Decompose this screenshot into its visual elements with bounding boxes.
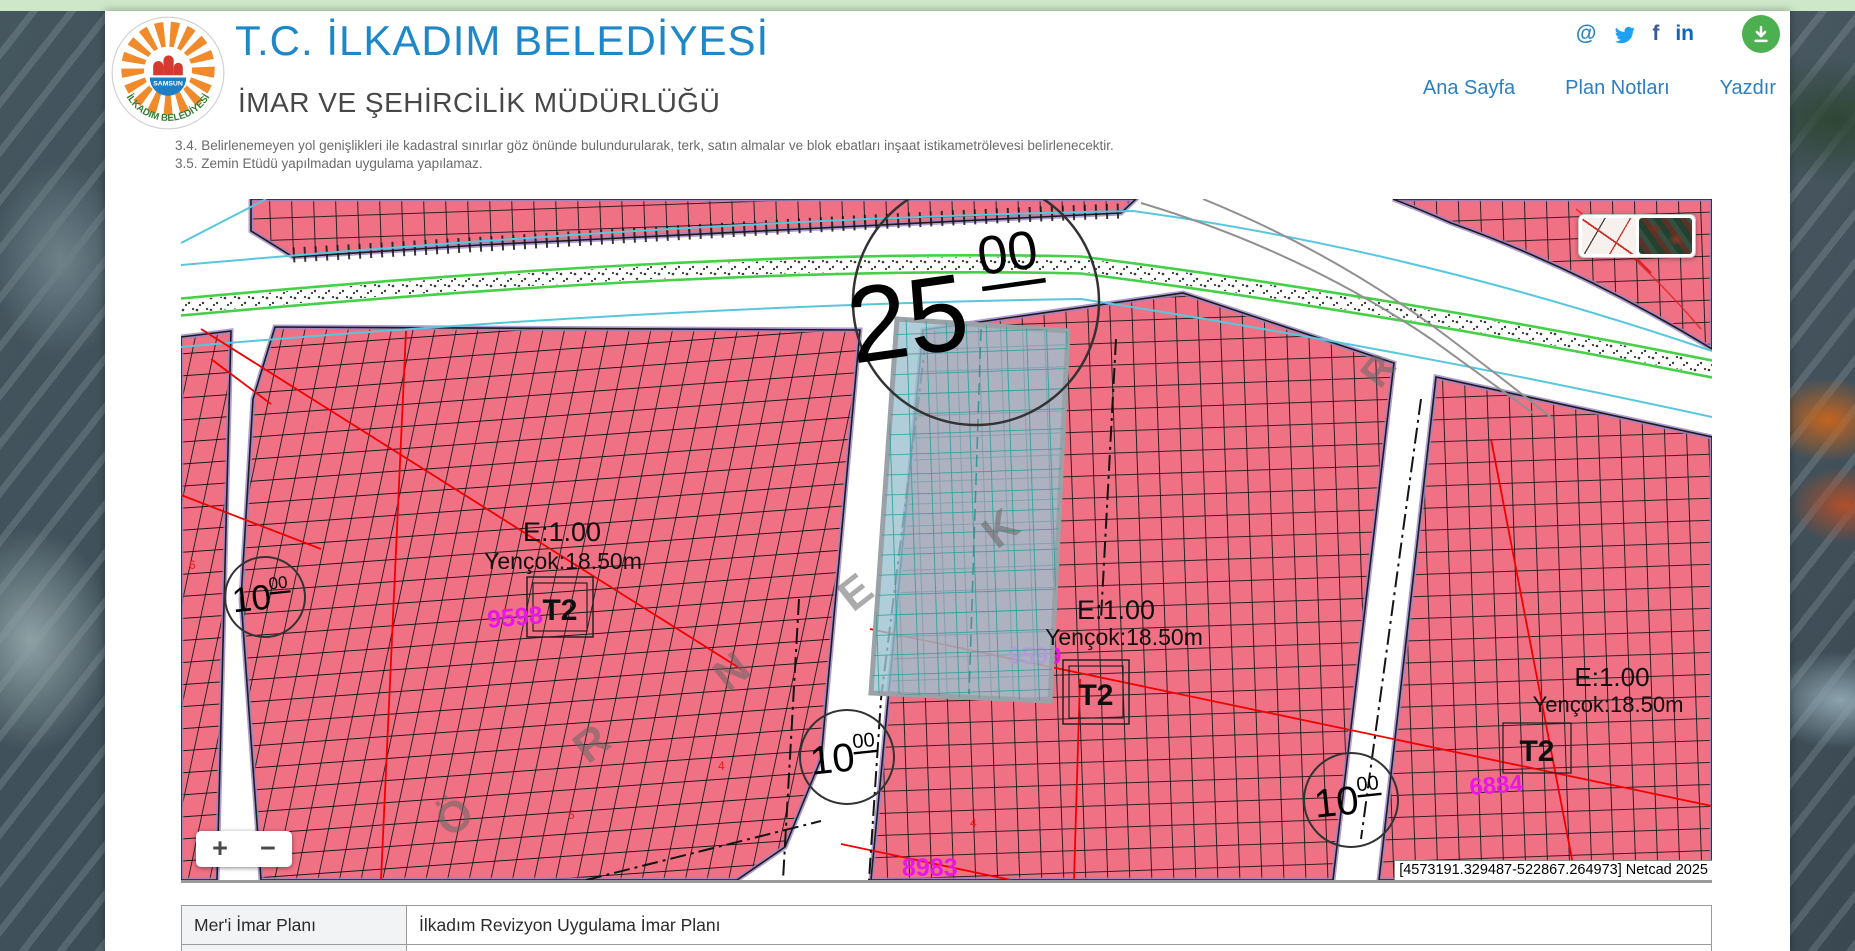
nav-plan-notlari[interactable]: Plan Notları <box>1565 77 1670 100</box>
table-row-label <box>182 945 407 951</box>
table-row-value <box>407 945 1712 951</box>
svg-text:Yençok:18.50m: Yençok:18.50m <box>484 548 642 574</box>
svg-text:Yençok:18.50m: Yençok:18.50m <box>1533 692 1684 717</box>
zoning-map-canvas[interactable]: 5 4 6 4 9599 Ö <box>181 199 1712 880</box>
svg-text:T2: T2 <box>1078 679 1113 712</box>
table-row-value: İlkadım Revizyon Uygulama İmar Planı <box>407 906 1712 945</box>
plan-info-table: Mer'i İmar Planı İlkadım Revizyon Uygula… <box>181 905 1712 951</box>
svg-text:5: 5 <box>568 808 575 822</box>
svg-text:10: 10 <box>230 577 273 620</box>
plan-notes: 3.4. Belirlenemeyen yol genişlikleri ile… <box>175 137 1114 173</box>
download-button[interactable] <box>1742 15 1780 53</box>
map-coordinates-readout: [4573191.329487-522867.264973] Netcad 20… <box>1394 860 1712 880</box>
table-row <box>182 945 1712 951</box>
page-top-accent-bar <box>0 0 1855 11</box>
svg-text:6: 6 <box>189 558 196 572</box>
table-row-label: Mer'i İmar Planı <box>182 906 407 945</box>
svg-text:Yençok:18.50m: Yençok:18.50m <box>1045 624 1203 650</box>
table-row: Mer'i İmar Planı İlkadım Revizyon Uygula… <box>182 906 1712 945</box>
zoning-map[interactable]: 5 4 6 4 9599 Ö <box>181 199 1712 883</box>
svg-text:T2: T2 <box>542 594 577 627</box>
parcel-number-6884: 6884 <box>1469 770 1525 801</box>
svg-text:10: 10 <box>1312 778 1361 826</box>
email-icon[interactable]: @ <box>1576 21 1596 47</box>
svg-text:4: 4 <box>718 759 725 773</box>
linkedin-icon[interactable]: in <box>1675 21 1694 47</box>
svg-text:E:1.00: E:1.00 <box>1574 662 1649 692</box>
main-nav: Ana Sayfa Plan Notları Yazdır <box>1423 77 1776 100</box>
map-zoom-control: + − <box>196 831 292 867</box>
svg-text:25: 25 <box>840 250 976 387</box>
parcel-number-8983: 8983 <box>902 854 958 880</box>
svg-text:T2: T2 <box>1519 735 1554 768</box>
social-links: @ f in <box>1576 21 1694 47</box>
svg-text:E:1.00: E:1.00 <box>523 517 601 547</box>
nav-ana-sayfa[interactable]: Ana Sayfa <box>1423 77 1515 100</box>
svg-text:10: 10 <box>808 735 857 783</box>
municipality-logo[interactable]: SAMSUN İLKADIM BELEDİYESİ <box>111 15 225 131</box>
twitter-icon[interactable] <box>1612 23 1636 45</box>
satellite-layer-thumbnail[interactable] <box>1639 218 1693 254</box>
zoom-out-button[interactable]: − <box>244 831 292 867</box>
svg-text:00: 00 <box>268 573 289 594</box>
logo-city-label: SAMSUN <box>153 81 183 88</box>
page-title: T.C. İLKADIM BELEDİYESİ <box>235 17 769 65</box>
basemap-switcher <box>1578 214 1696 258</box>
svg-text:E:1.00: E:1.00 <box>1077 595 1155 625</box>
zoom-in-button[interactable]: + <box>196 831 244 867</box>
svg-text:00: 00 <box>974 219 1042 287</box>
content-card: SAMSUN İLKADIM BELEDİYESİ T.C. İLKADIM B… <box>105 11 1790 951</box>
page-subtitle: İMAR VE ŞEHİRCİLİK MÜDÜRLÜĞÜ <box>238 87 720 119</box>
svg-text:4: 4 <box>970 816 977 830</box>
plan-note-3-4: 3.4. Belirlenemeyen yol genişlikleri ile… <box>175 137 1114 155</box>
svg-text:00: 00 <box>1355 772 1379 796</box>
facebook-icon[interactable]: f <box>1652 21 1659 47</box>
nav-yazdir[interactable]: Yazdır <box>1720 77 1776 100</box>
download-icon <box>1750 23 1772 45</box>
plan-layer-thumbnail[interactable] <box>1582 218 1636 254</box>
svg-text:00: 00 <box>851 729 875 753</box>
plan-note-3-5: 3.5. Zemin Etüdü yapılmadan uygulama yap… <box>175 155 1114 173</box>
parcel-number-9598: 9598 <box>486 601 544 634</box>
